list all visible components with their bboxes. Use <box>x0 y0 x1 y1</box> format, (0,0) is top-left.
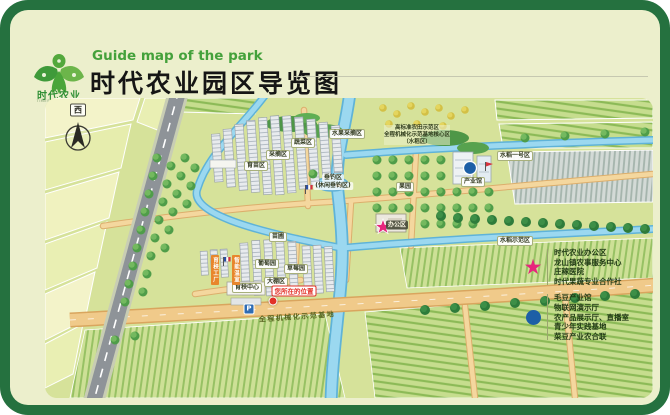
label-orchard: 果园 <box>396 182 414 192</box>
map-legend: 时代农业办公区 龙山镇农事服务中心 庄稼医院 时代果蔬专业合作社 毛豆产业馆 物… <box>521 248 629 348</box>
field-note: 高标准农田示范区 全程机械化示范基地核心区 （水稻区） <box>384 125 450 145</box>
legend-dot-icon <box>526 310 541 325</box>
page-title-english: Guide map of the park <box>92 48 263 64</box>
legend-divider <box>547 249 548 285</box>
legend-item: 农产品展示厅、直播室 <box>554 313 629 323</box>
legend-item: 菜豆产业农合联 <box>554 332 629 342</box>
legend-item: 龙山镇农事服务中心 <box>554 258 622 268</box>
compass-west-label: 西 <box>70 104 86 117</box>
you-are-here-dot <box>269 297 278 306</box>
label-vegetable-area: 蔬菜区 <box>291 138 315 148</box>
legend-dot-group: 毛豆产业馆 物联网演示厅 农产品展示厅、直播室 青少年实践基地 菜豆产业农合联 <box>521 293 629 341</box>
legend-item: 庄稼医院 <box>554 267 622 277</box>
legend-item: 时代农业办公区 <box>554 248 622 258</box>
park-map: 西 蔬菜区 采摘区 育苗区 水果采摘区 果园 水稻一号区 水稻示范区 苗圃 葡萄… <box>45 98 653 398</box>
poster-card: 时代农业 TIMES AGRICULTURE Guide map of the … <box>10 10 660 405</box>
field-note-line3: （水稻区） <box>384 139 450 146</box>
label-greenhouse-tag1: 育秧工厂 <box>211 255 219 285</box>
label-fishing-area-sub: (休闲垂钓区) <box>313 182 353 190</box>
label-industry-hall: 产业馆 <box>461 177 485 187</box>
label-fruit-picking-area: 水果采摘区 <box>329 129 365 139</box>
blue-dot-marker <box>464 162 477 175</box>
label-grape-garden: 葡萄园 <box>255 259 279 269</box>
page-title: 时代农业园区导览图 <box>90 64 342 100</box>
legend-divider <box>547 294 548 340</box>
label-office-area: 办公区 <box>386 221 408 230</box>
legend-item: 物联网演示厅 <box>554 303 629 313</box>
label-seedling-area: 育苗区 <box>244 161 268 171</box>
legend-star-icon <box>525 259 542 276</box>
park-logo: 时代农业 TIMES AGRICULTURE <box>30 43 88 105</box>
label-picking-area: 采摘区 <box>266 150 290 160</box>
label-nursery: 苗圃 <box>269 232 287 242</box>
legend-item: 青少年实践基地 <box>554 322 629 332</box>
parking-icon: P <box>244 304 255 315</box>
legend-star-group: 时代农业办公区 龙山镇农事服务中心 庄稼医院 时代果蔬专业合作社 <box>521 248 629 286</box>
label-paddy-demo: 水稻示范区 <box>497 236 533 246</box>
field-note-line2: 全程机械化示范基地核心区 <box>384 132 450 139</box>
label-fishing-area: 垂钓区 <box>322 174 344 182</box>
poster-frame: 时代农业 TIMES AGRICULTURE Guide map of the … <box>0 0 670 415</box>
label-strawberry-garden: 草莓园 <box>284 264 308 274</box>
legend-item: 时代果蔬专业合作社 <box>554 277 622 287</box>
field-note-line1: 高标准农田示范区 <box>384 125 450 132</box>
you-are-here-badge: 您所在的位置 <box>272 286 317 297</box>
label-greenhouse-tag2: 智能温室 <box>232 255 240 285</box>
label-paddy-no1: 水稻一号区 <box>497 151 533 161</box>
header-divider <box>294 76 648 77</box>
legend-item: 毛豆产业馆 <box>554 293 629 303</box>
